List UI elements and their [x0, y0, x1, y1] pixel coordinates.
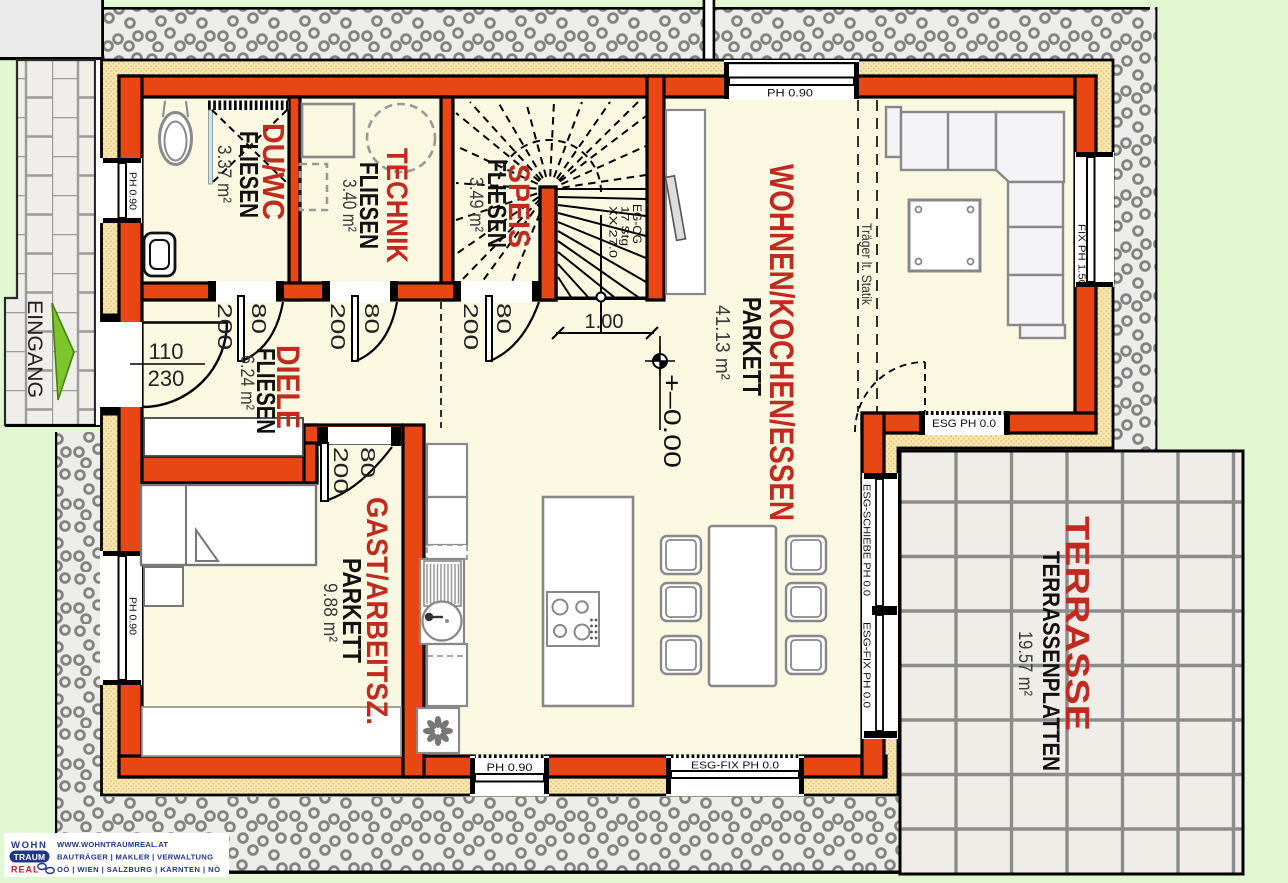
- svg-text:1.00: 1.00: [585, 311, 624, 333]
- svg-text:80: 80: [247, 303, 269, 334]
- svg-text:EINGANG: EINGANG: [23, 300, 46, 398]
- svg-text:PH 0.90: PH 0.90: [127, 172, 139, 210]
- svg-text:ESG PH 0.0: ESG PH 0.0: [932, 418, 996, 430]
- svg-text:ESG-FIX PH 0.0: ESG-FIX PH 0.0: [861, 622, 872, 709]
- svg-text:3.37 m²: 3.37 m²: [213, 145, 234, 203]
- svg-text:PARKETT: PARKETT: [737, 297, 767, 396]
- svg-text:XX/27.0: XX/27.0: [607, 206, 619, 258]
- svg-text:TRAUM: TRAUM: [14, 852, 46, 862]
- svg-text:FLIESEN: FLIESEN: [234, 131, 264, 218]
- svg-text:200: 200: [213, 303, 235, 350]
- svg-text:110: 110: [148, 339, 183, 364]
- svg-text:BAUTRÄGER | MAKLER | VERWALTUN: BAUTRÄGER | MAKLER | VERWALTUNG: [57, 853, 213, 862]
- svg-text:ESG-SCHIEBE PH 0.0: ESG-SCHIEBE PH 0.0: [861, 484, 872, 596]
- svg-text:EG-OG: EG-OG: [630, 204, 644, 244]
- svg-text:ESG-FIX PH 0.0: ESG-FIX PH 0.0: [691, 760, 779, 772]
- svg-text:80: 80: [356, 447, 378, 478]
- svg-text:WOHN: WOHN: [11, 840, 47, 851]
- svg-text:3.49 m²: 3.49 m²: [465, 177, 486, 232]
- svg-text:OÖ | WIEN | SALZBURG | KÄRNTEN: OÖ | WIEN | SALZBURG | KÄRNTEN | NÖ: [57, 865, 220, 874]
- svg-text:80: 80: [360, 303, 382, 334]
- svg-text:200: 200: [329, 447, 351, 494]
- svg-text:80: 80: [492, 303, 514, 334]
- svg-text:Träger lt. Statik: Träger lt. Statik: [859, 223, 874, 305]
- svg-text:PH 0.90: PH 0.90: [487, 762, 533, 774]
- svg-text:+–0.00: +–0.00: [658, 374, 685, 468]
- svg-text:19.57 m²: 19.57 m²: [1014, 631, 1035, 696]
- svg-text:PARKETT: PARKETT: [337, 558, 367, 663]
- svg-text:17 Stg.: 17 Stg.: [619, 206, 631, 250]
- svg-text:REAL: REAL: [11, 865, 40, 875]
- svg-text:200: 200: [459, 303, 481, 350]
- svg-text:200: 200: [326, 303, 348, 350]
- svg-text:6.24 m²: 6.24 m²: [236, 355, 257, 410]
- svg-text:3.40 m²: 3.40 m²: [338, 179, 359, 232]
- svg-text:FIX PH 1.50: FIX PH 1.50: [1076, 224, 1088, 286]
- svg-text:230: 230: [148, 366, 185, 391]
- svg-text:TERRASSENPLATTEN: TERRASSENPLATTEN: [1037, 551, 1064, 771]
- svg-text:9.88 m²: 9.88 m²: [319, 583, 340, 642]
- svg-text:PH 0.90: PH 0.90: [127, 597, 139, 635]
- svg-text:PH 0.90: PH 0.90: [767, 88, 813, 100]
- svg-text:41.13 m²: 41.13 m²: [711, 305, 733, 380]
- svg-text:WWW.WOHNTRAUMREAL.AT: WWW.WOHNTRAUMREAL.AT: [57, 840, 168, 849]
